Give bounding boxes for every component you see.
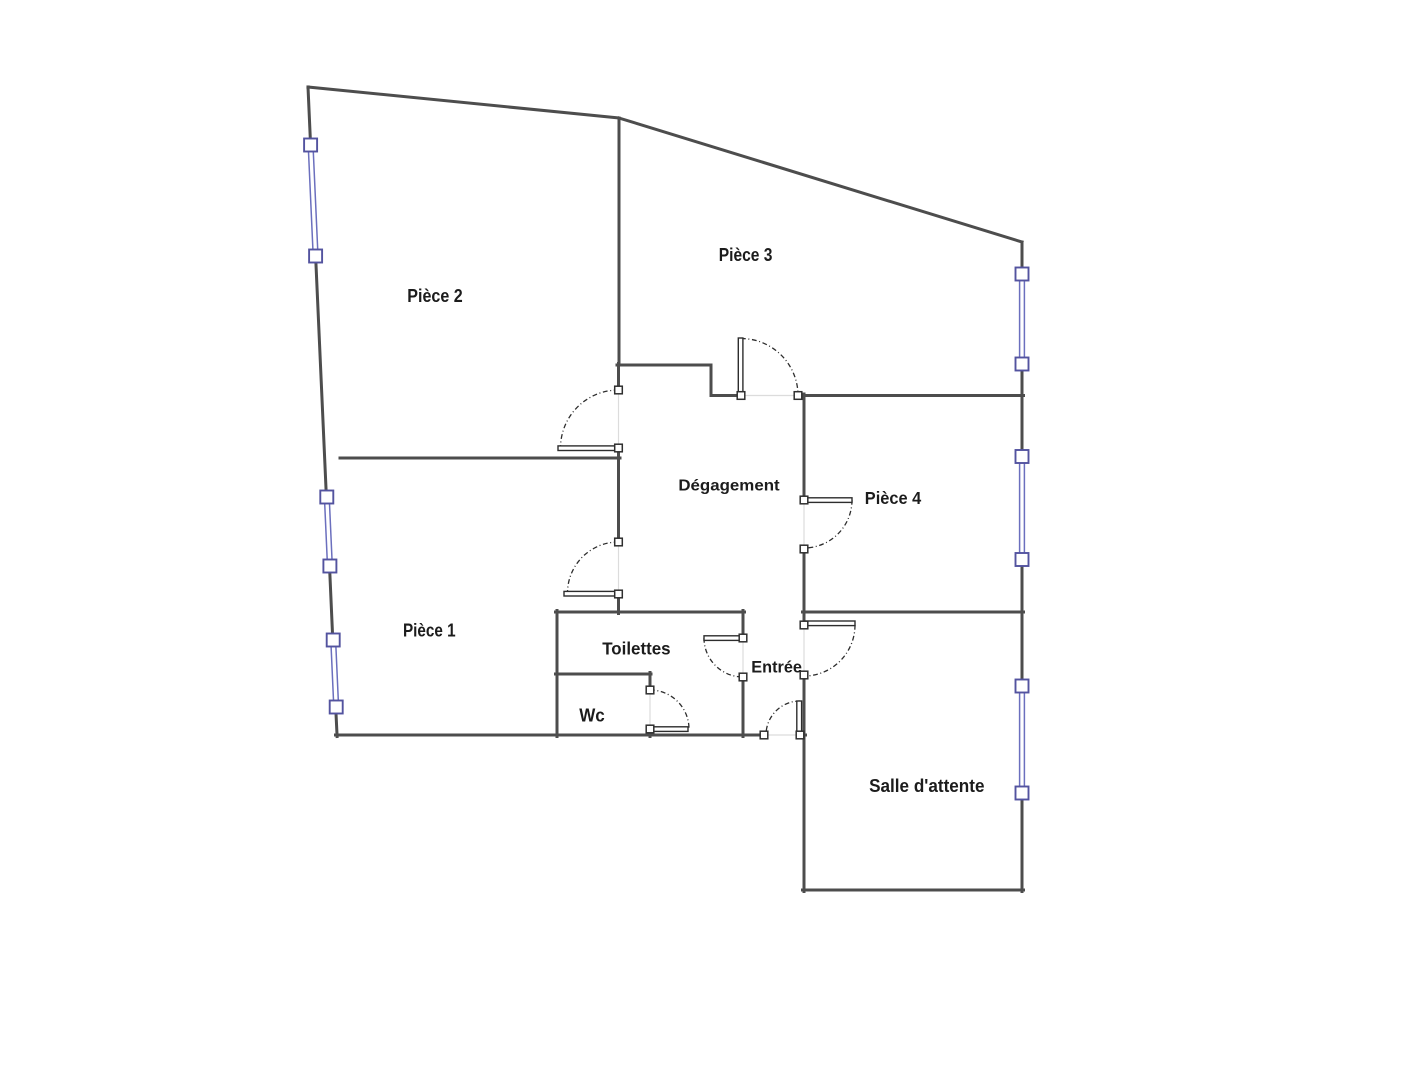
- svg-text:Toilettes: Toilettes: [602, 639, 671, 659]
- svg-text:Wc: Wc: [579, 704, 605, 725]
- svg-text:Pièce 1: Pièce 1: [403, 619, 456, 640]
- svg-text:Dégagement: Dégagement: [678, 477, 780, 494]
- svg-text:Salle d'attente: Salle d'attente: [869, 775, 984, 796]
- svg-text:Pièce 3: Pièce 3: [719, 244, 773, 265]
- svg-text:Entrée: Entrée: [751, 658, 802, 677]
- svg-text:Pièce 2: Pièce 2: [407, 285, 462, 306]
- svg-text:Pièce 4: Pièce 4: [865, 488, 922, 508]
